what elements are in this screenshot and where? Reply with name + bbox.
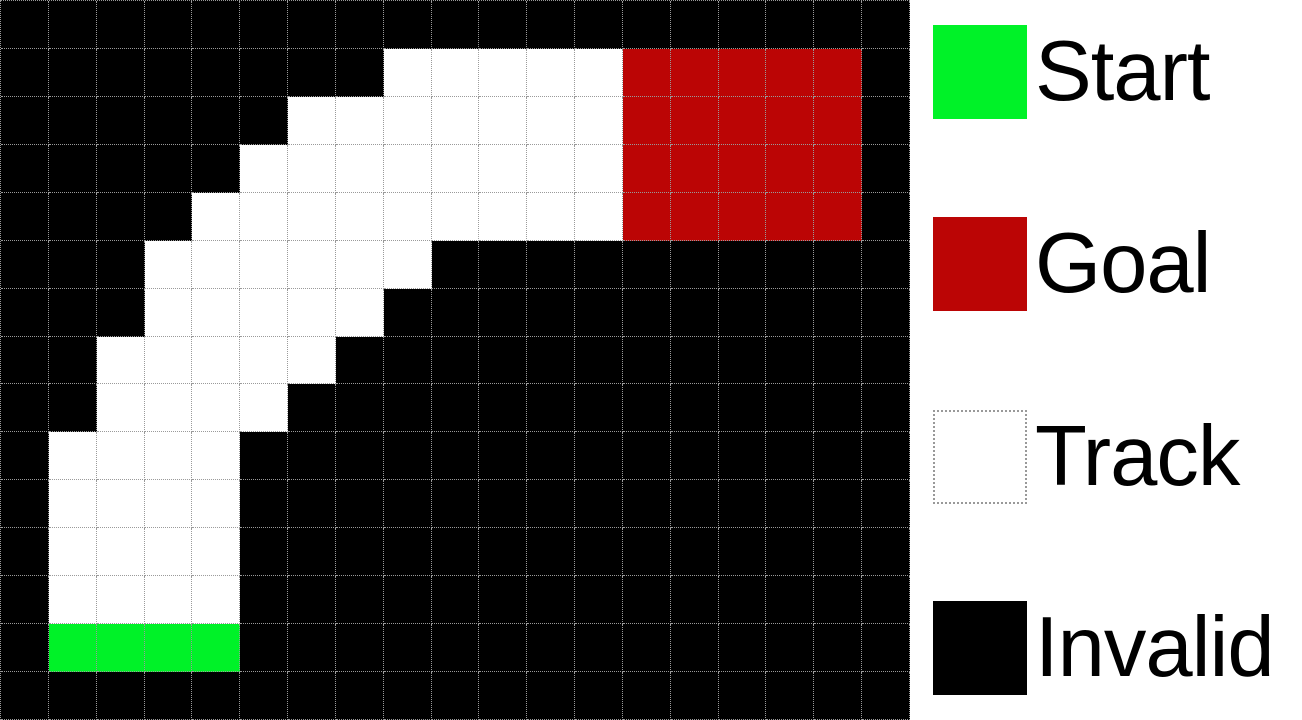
grid-cell-invalid (479, 528, 527, 576)
grid-cell-invalid (288, 49, 336, 97)
grid-cell-track (336, 145, 384, 193)
grid-cell-invalid (384, 624, 432, 672)
grid-cell-invalid (336, 49, 384, 97)
grid-cell-track (49, 480, 97, 528)
grid-cell-goal (766, 49, 814, 97)
grid-cell-invalid (719, 384, 767, 432)
grid-cell-invalid (288, 624, 336, 672)
grid-cell-invalid (527, 432, 575, 480)
grid-cell-invalid (862, 337, 910, 385)
grid-cell-invalid (432, 624, 480, 672)
grid-cell-track (384, 49, 432, 97)
grid-cell-track (288, 241, 336, 289)
grid-cell-invalid (432, 576, 480, 624)
grid-cell-track (192, 576, 240, 624)
grid-cell-goal (671, 193, 719, 241)
grid-cell-invalid (623, 1, 671, 49)
grid-cell-track (527, 193, 575, 241)
grid-cell-track (336, 97, 384, 145)
grid-cell-invalid (766, 432, 814, 480)
legend-item-track: Track (933, 410, 1239, 504)
grid-cell-invalid (814, 480, 862, 528)
grid-cell-start (192, 624, 240, 672)
grid-cell-invalid (145, 1, 193, 49)
grid-cell-invalid (766, 384, 814, 432)
grid-cell-invalid (336, 432, 384, 480)
grid-cell-invalid (384, 432, 432, 480)
grid-cell-invalid (479, 337, 527, 385)
grid-cell-invalid (575, 241, 623, 289)
grid-cell-invalid (97, 145, 145, 193)
grid-cell-track (288, 337, 336, 385)
grid-cell-invalid (145, 97, 193, 145)
grid-cell-track (145, 337, 193, 385)
grid-cell-invalid (288, 672, 336, 720)
grid-cell-invalid (192, 1, 240, 49)
grid-cell-invalid (671, 337, 719, 385)
grid-cell-goal (719, 193, 767, 241)
grid-cell-invalid (671, 1, 719, 49)
grid-cell-invalid (479, 624, 527, 672)
grid-cell-invalid (671, 672, 719, 720)
grid-cell-invalid (288, 432, 336, 480)
invalid-swatch (933, 601, 1027, 695)
grid-cell-invalid (240, 1, 288, 49)
grid-cell-invalid (719, 672, 767, 720)
grid-cell-invalid (49, 337, 97, 385)
grid-cell-invalid (240, 49, 288, 97)
grid-cell-invalid (384, 289, 432, 337)
grid-cell-invalid (1, 432, 49, 480)
grid-cell-invalid (49, 241, 97, 289)
grid-cell-invalid (288, 480, 336, 528)
grid-cell-invalid (862, 528, 910, 576)
grid-cell-invalid (862, 624, 910, 672)
grid-cell-invalid (862, 289, 910, 337)
grid-cell-invalid (336, 337, 384, 385)
grid-cell-invalid (814, 576, 862, 624)
grid-cell-invalid (97, 49, 145, 97)
grid-cell-invalid (384, 384, 432, 432)
grid-cell-goal (671, 97, 719, 145)
grid-cell-invalid (1, 193, 49, 241)
grid-cell-invalid (240, 528, 288, 576)
grid-cell-invalid (862, 97, 910, 145)
legend-label-goal: Goal (1035, 217, 1211, 311)
grid-cell-invalid (479, 576, 527, 624)
grid-cell-track (192, 384, 240, 432)
grid-cell-invalid (623, 337, 671, 385)
grid-cell-invalid (671, 432, 719, 480)
grid-cell-invalid (814, 672, 862, 720)
grid-cell-invalid (288, 384, 336, 432)
grid-cell-track (288, 193, 336, 241)
grid-cell-invalid (575, 528, 623, 576)
grid-cell-invalid (384, 337, 432, 385)
grid-cell-invalid (1, 672, 49, 720)
grid-cell-invalid (766, 672, 814, 720)
grid-cell-goal (623, 145, 671, 193)
grid-cell-invalid (719, 528, 767, 576)
grid-cell-invalid (1, 576, 49, 624)
grid-cell-track (432, 145, 480, 193)
grid-cell-goal (671, 145, 719, 193)
grid-cell-invalid (384, 528, 432, 576)
grid-cell-invalid (432, 241, 480, 289)
grid-cell-invalid (49, 1, 97, 49)
grid-cell-invalid (766, 624, 814, 672)
grid-cell-invalid (288, 1, 336, 49)
grid-cell-invalid (814, 289, 862, 337)
grid-cell-track (432, 49, 480, 97)
grid-cell-goal (814, 145, 862, 193)
grid-cell-invalid (192, 97, 240, 145)
grid-cell-invalid (766, 337, 814, 385)
grid-cell-invalid (49, 145, 97, 193)
grid-cell-track (527, 49, 575, 97)
grid-cell-invalid (527, 337, 575, 385)
grid-cell-track (97, 337, 145, 385)
grid-cell-track (384, 241, 432, 289)
grid-cell-track (336, 241, 384, 289)
grid-cell-track (49, 576, 97, 624)
grid-cell-invalid (671, 289, 719, 337)
grid-cell-invalid (671, 528, 719, 576)
grid-cell-invalid (575, 576, 623, 624)
grid-cell-invalid (814, 1, 862, 49)
grid-cell-invalid (719, 241, 767, 289)
grid-cell-invalid (479, 480, 527, 528)
grid-cell-invalid (623, 624, 671, 672)
legend-item-start: Start (933, 25, 1210, 119)
grid-cell-invalid (623, 432, 671, 480)
grid-cell-invalid (766, 289, 814, 337)
grid-cell-track (240, 337, 288, 385)
grid-cell-track (97, 384, 145, 432)
grid-cell-track (49, 528, 97, 576)
grid-cell-start (97, 624, 145, 672)
grid-cell-invalid (432, 480, 480, 528)
grid-cell-track (240, 289, 288, 337)
grid-cell-goal (719, 97, 767, 145)
legend: Start Goal Track Invalid (910, 0, 1302, 720)
grid-cell-invalid (49, 49, 97, 97)
grid-cell-invalid (336, 624, 384, 672)
grid-cell-track (192, 480, 240, 528)
grid-cell-goal (814, 97, 862, 145)
grid-cell-track (479, 145, 527, 193)
grid-cell-track (145, 289, 193, 337)
grid-cell-invalid (719, 624, 767, 672)
grid-cell-goal (814, 49, 862, 97)
grid-cell-track (192, 289, 240, 337)
grid-cell-invalid (145, 145, 193, 193)
grid-cell-track (336, 289, 384, 337)
grid-cell-invalid (527, 289, 575, 337)
grid-cell-invalid (240, 672, 288, 720)
grid-cell-invalid (336, 1, 384, 49)
grid-cell-invalid (766, 1, 814, 49)
grid-cell-invalid (575, 337, 623, 385)
grid-cell-track (145, 480, 193, 528)
grid-cell-invalid (145, 49, 193, 97)
grid-cell-invalid (623, 480, 671, 528)
grid-cell-invalid (432, 1, 480, 49)
grid-cell-track (192, 193, 240, 241)
grid-cell-invalid (766, 528, 814, 576)
grid-cell-invalid (192, 145, 240, 193)
grid-cell-invalid (623, 672, 671, 720)
grid-cell-track (288, 97, 336, 145)
grid-cell-invalid (862, 193, 910, 241)
grid-cell-invalid (1, 337, 49, 385)
grid-cell-track (479, 97, 527, 145)
grid-cell-invalid (432, 337, 480, 385)
grid-cell-invalid (527, 624, 575, 672)
grid-cell-goal (623, 97, 671, 145)
grid-cell-track (575, 49, 623, 97)
grid-cell-invalid (1, 528, 49, 576)
grid-cell-invalid (719, 432, 767, 480)
grid-cell-invalid (49, 672, 97, 720)
grid-cell-invalid (527, 528, 575, 576)
grid-cell-invalid (575, 432, 623, 480)
grid-cell-track (192, 528, 240, 576)
grid-cell-invalid (49, 193, 97, 241)
grid-cell-invalid (623, 289, 671, 337)
grid-cell-track (527, 145, 575, 193)
grid-cell-invalid (432, 528, 480, 576)
grid-cell-invalid (336, 480, 384, 528)
grid-cell-track (479, 49, 527, 97)
grid-cell-invalid (1, 289, 49, 337)
grid-cell-invalid (862, 672, 910, 720)
grid-cell-invalid (97, 97, 145, 145)
grid-cell-invalid (432, 384, 480, 432)
racetrack-figure: Start Goal Track Invalid (0, 0, 1302, 720)
grid-cell-track (575, 145, 623, 193)
grid-cell-track (575, 193, 623, 241)
grid-cell-invalid (1, 145, 49, 193)
grid-cell-invalid (97, 193, 145, 241)
grid-cell-invalid (527, 576, 575, 624)
grid-cell-invalid (575, 1, 623, 49)
grid-cell-track (288, 145, 336, 193)
grid-cell-track (288, 289, 336, 337)
grid-cell-invalid (384, 480, 432, 528)
grid-cell-invalid (479, 241, 527, 289)
grid-cell-invalid (336, 384, 384, 432)
grid-cell-invalid (432, 289, 480, 337)
grid-cell-track (384, 97, 432, 145)
grid-cell-track (479, 193, 527, 241)
grid-cell-invalid (336, 576, 384, 624)
grid-cell-invalid (240, 97, 288, 145)
grid-cell-track (145, 432, 193, 480)
grid-cell-invalid (814, 624, 862, 672)
grid-cell-track (575, 97, 623, 145)
grid-cell-invalid (384, 672, 432, 720)
grid-cell-track (240, 241, 288, 289)
grid-cell-invalid (575, 624, 623, 672)
grid-cell-invalid (97, 1, 145, 49)
grid-cell-invalid (1, 97, 49, 145)
grid-cell-invalid (527, 480, 575, 528)
grid-cell-invalid (671, 624, 719, 672)
track-swatch (933, 410, 1027, 504)
grid-cell-invalid (719, 576, 767, 624)
grid-cell-invalid (49, 289, 97, 337)
grid-cell-invalid (719, 289, 767, 337)
grid-cell-invalid (479, 384, 527, 432)
grid-cell-invalid (766, 480, 814, 528)
grid-cell-track (49, 432, 97, 480)
grid-cell-invalid (766, 241, 814, 289)
grid-cell-invalid (97, 241, 145, 289)
grid-cell-invalid (671, 480, 719, 528)
grid-cell-track (97, 432, 145, 480)
grid-cell-invalid (145, 193, 193, 241)
grid-cell-track (384, 145, 432, 193)
grid-cell-invalid (719, 1, 767, 49)
grid-cell-invalid (527, 672, 575, 720)
grid-cell-track (192, 337, 240, 385)
grid-cell-invalid (527, 384, 575, 432)
grid-cell-invalid (240, 480, 288, 528)
grid-cell-invalid (575, 384, 623, 432)
grid-cell-invalid (862, 241, 910, 289)
grid-cell-invalid (192, 672, 240, 720)
grid-cell-invalid (862, 432, 910, 480)
grid-cell-invalid (336, 528, 384, 576)
grid-cell-invalid (862, 384, 910, 432)
grid-cell-invalid (49, 97, 97, 145)
grid-cell-track (384, 193, 432, 241)
grid-cell-invalid (575, 289, 623, 337)
legend-label-invalid: Invalid (1035, 601, 1274, 695)
grid-cell-invalid (575, 480, 623, 528)
grid-cell-track (336, 193, 384, 241)
grid-cell-invalid (97, 289, 145, 337)
grid-cell-invalid (1, 480, 49, 528)
grid-cell-invalid (862, 576, 910, 624)
racetrack-grid (0, 0, 910, 720)
grid-cell-goal (766, 145, 814, 193)
grid-cell-track (97, 528, 145, 576)
grid-cell-invalid (1, 241, 49, 289)
grid-cell-track (145, 528, 193, 576)
grid-cell-invalid (814, 337, 862, 385)
grid-cell-invalid (240, 576, 288, 624)
grid-cell-track (240, 193, 288, 241)
grid-cell-invalid (145, 672, 193, 720)
grid-cell-invalid (384, 576, 432, 624)
grid-cell-goal (766, 97, 814, 145)
goal-swatch (933, 217, 1027, 311)
grid-cell-invalid (479, 1, 527, 49)
grid-cell-invalid (862, 1, 910, 49)
grid-cell-invalid (479, 432, 527, 480)
grid-cell-track (145, 241, 193, 289)
grid-cell-invalid (862, 145, 910, 193)
grid-cell-invalid (814, 384, 862, 432)
grid-cell-track (240, 384, 288, 432)
grid-cell-invalid (719, 480, 767, 528)
grid-cell-goal (719, 145, 767, 193)
grid-cell-invalid (719, 337, 767, 385)
grid-cell-goal (719, 49, 767, 97)
grid-cell-invalid (288, 528, 336, 576)
grid-cell-invalid (432, 672, 480, 720)
grid-cell-invalid (862, 480, 910, 528)
grid-cell-track (97, 480, 145, 528)
grid-cell-track (145, 384, 193, 432)
grid-cell-start (49, 624, 97, 672)
grid-cell-invalid (527, 241, 575, 289)
grid-cell-start (145, 624, 193, 672)
legend-item-invalid: Invalid (933, 601, 1274, 695)
legend-label-start: Start (1035, 25, 1210, 119)
grid-cell-goal (671, 49, 719, 97)
grid-cell-invalid (814, 432, 862, 480)
grid-cell-invalid (479, 289, 527, 337)
grid-cell-invalid (527, 1, 575, 49)
legend-item-goal: Goal (933, 217, 1211, 311)
grid-cell-invalid (814, 528, 862, 576)
grid-cell-track (527, 97, 575, 145)
grid-cell-invalid (240, 432, 288, 480)
grid-cell-invalid (671, 576, 719, 624)
grid-cell-invalid (240, 624, 288, 672)
grid-cell-goal (623, 49, 671, 97)
grid-cell-track (192, 432, 240, 480)
grid-cell-goal (623, 193, 671, 241)
grid-cell-track (432, 193, 480, 241)
grid-cell-invalid (97, 672, 145, 720)
grid-cell-track (97, 576, 145, 624)
grid-cell-invalid (575, 672, 623, 720)
grid-cell-track (145, 576, 193, 624)
grid-cell-invalid (671, 384, 719, 432)
grid-cell-goal (766, 193, 814, 241)
grid-cell-invalid (192, 49, 240, 97)
grid-cell-invalid (814, 241, 862, 289)
grid-cell-invalid (384, 1, 432, 49)
grid-cell-invalid (766, 576, 814, 624)
grid-cell-invalid (479, 672, 527, 720)
start-swatch (933, 25, 1027, 119)
grid-cell-track (432, 97, 480, 145)
grid-cell-invalid (862, 49, 910, 97)
grid-cell-invalid (432, 432, 480, 480)
grid-cell-invalid (623, 528, 671, 576)
grid-cell-invalid (49, 384, 97, 432)
grid-cell-invalid (623, 576, 671, 624)
grid-cell-track (240, 145, 288, 193)
grid-cell-invalid (1, 384, 49, 432)
grid-cell-invalid (336, 672, 384, 720)
grid-cell-invalid (1, 49, 49, 97)
grid-cell-invalid (623, 241, 671, 289)
grid-cell-track (192, 241, 240, 289)
legend-label-track: Track (1035, 410, 1239, 504)
grid-cell-invalid (288, 576, 336, 624)
grid-cell-invalid (1, 624, 49, 672)
grid-cell-invalid (1, 1, 49, 49)
grid-cell-invalid (623, 384, 671, 432)
grid-cell-goal (814, 193, 862, 241)
grid-cell-invalid (671, 241, 719, 289)
